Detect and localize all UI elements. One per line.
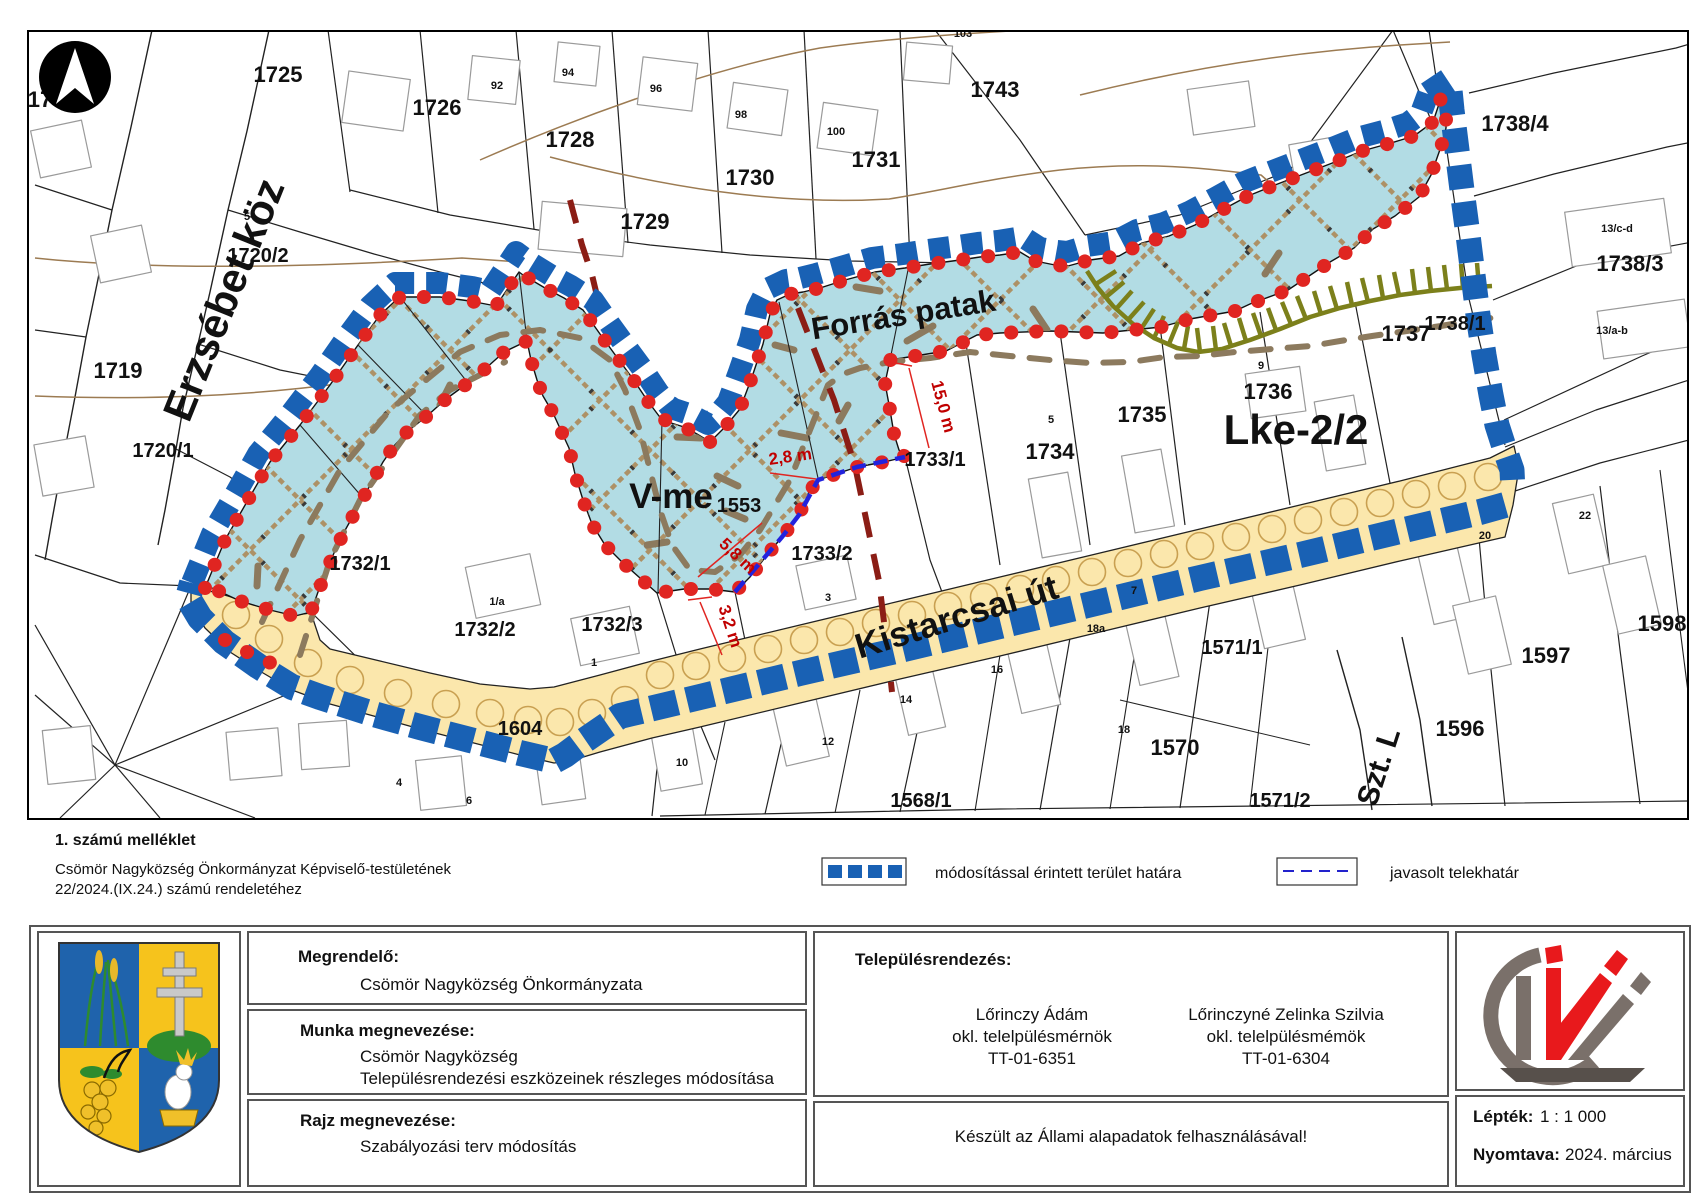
svg-text:1733/1: 1733/1 [904,449,965,471]
svg-text:Csömör Nagyközség Önkormányzat: Csömör Nagyközség Önkormányzat Képviselő… [55,860,452,878]
svg-text:1597: 1597 [1522,643,1571,668]
svg-text:Lőrinczy Ádám: Lőrinczy Ádám [976,1005,1088,1024]
svg-text:1735: 1735 [1118,402,1167,427]
svg-text:okl. telelpülésmérnök: okl. telelpülésmérnök [952,1027,1112,1046]
svg-text:18: 18 [1118,724,1130,736]
svg-text:94: 94 [562,67,575,79]
svg-text:1553: 1553 [717,495,762,517]
svg-text:javasolt telekhatár: javasolt telekhatár [1389,865,1520,882]
svg-text:TT-01-6304: TT-01-6304 [1242,1049,1330,1068]
svg-text:Csömör Nagyközség: Csömör Nagyközség [360,1047,518,1066]
svg-text:1568/1: 1568/1 [890,790,951,812]
svg-text:1743: 1743 [971,77,1020,102]
svg-text:1738/3: 1738/3 [1596,251,1663,276]
svg-text:1732/1: 1732/1 [329,553,390,575]
svg-text:Csömör Nagyközség Önkormányzat: Csömör Nagyközség Önkormányzata [360,975,643,994]
svg-text:5: 5 [1048,414,1054,426]
svg-text:12: 12 [822,736,834,748]
svg-text:Szabályozási terv módosítás: Szabályozási terv módosítás [360,1137,576,1156]
svg-text:1571/2: 1571/2 [1249,790,1310,812]
svg-text:okl. telelpülésmémök: okl. telelpülésmémök [1207,1027,1366,1046]
svg-text:1726: 1726 [413,95,462,120]
svg-text:4: 4 [396,777,403,789]
svg-text:14: 14 [900,694,913,706]
svg-text:6: 6 [466,795,472,807]
svg-text:2024. március: 2024. március [1565,1145,1672,1164]
svg-text:1736: 1736 [1244,379,1293,404]
svg-text:22/2024.(IX.24.) számú rendele: 22/2024.(IX.24.) számú rendeletéhez [55,881,302,898]
svg-text:Készült az Állami alapadatok f: Készült az Állami alapadatok felhasználá… [955,1127,1307,1146]
svg-text:92: 92 [491,80,503,92]
svg-text:9: 9 [1258,360,1264,372]
svg-text:1733/2: 1733/2 [791,543,852,565]
svg-text:1732/2: 1732/2 [454,619,515,641]
svg-text:18a: 18a [1087,623,1106,635]
svg-text:20: 20 [1479,530,1491,542]
svg-text:Lépték:: Lépték: [1473,1107,1533,1126]
svg-text:3: 3 [825,592,831,604]
svg-text:V-me: V-me [629,477,713,516]
svg-text:1570: 1570 [1151,735,1200,760]
svg-text:1729: 1729 [621,209,670,234]
svg-text:1738/4: 1738/4 [1481,111,1549,136]
svg-text:1720/1: 1720/1 [132,440,193,462]
svg-text:1598: 1598 [1638,611,1687,636]
svg-text:13/a-b: 13/a-b [1596,325,1628,337]
svg-text:10: 10 [676,757,688,769]
svg-text:Településrendezés:: Településrendezés: [855,950,1012,969]
svg-text:1731: 1731 [852,147,901,172]
svg-text:1 : 1 000: 1 : 1 000 [1540,1107,1606,1126]
svg-text:1/a: 1/a [489,596,505,608]
svg-text:Munka megnevezése:: Munka megnevezése: [300,1021,475,1040]
svg-text:100: 100 [827,126,845,138]
svg-text:1737: 1737 [1382,321,1431,346]
svg-text:96: 96 [650,83,662,95]
svg-text:1725: 1725 [254,62,303,87]
svg-text:módosítással érintett terület: módosítással érintett terület határa [935,865,1181,882]
svg-text:16: 16 [991,664,1003,676]
svg-text:1. számú melléklet: 1. számú melléklet [55,832,196,849]
svg-text:1728: 1728 [546,127,595,152]
svg-text:Lőrinczyné Zelinka Szilvia: Lőrinczyné Zelinka Szilvia [1188,1005,1384,1024]
svg-text:22: 22 [1579,510,1591,522]
svg-text:1719: 1719 [94,358,143,383]
svg-text:1730: 1730 [726,165,775,190]
svg-text:1604: 1604 [498,718,543,740]
svg-text:13/c-d: 13/c-d [1601,223,1633,235]
svg-text:Rajz megnevezése:: Rajz megnevezése: [300,1111,456,1130]
svg-text:TT-01-6351: TT-01-6351 [988,1049,1076,1068]
svg-text:Megrendelő:: Megrendelő: [298,947,399,966]
svg-text:1738/1: 1738/1 [1424,313,1485,335]
svg-text:Településrendezési eszközeinek: Településrendezési eszközeinek részleges… [360,1069,774,1088]
svg-text:1732/3: 1732/3 [581,614,642,636]
svg-text:7: 7 [1131,585,1137,597]
svg-text:98: 98 [735,109,747,121]
svg-text:Lke-2/2: Lke-2/2 [1224,406,1369,453]
svg-text:1734: 1734 [1026,439,1076,464]
svg-text:Nyomtava:: Nyomtava: [1473,1145,1560,1164]
svg-text:1596: 1596 [1436,716,1485,741]
svg-text:1571/1: 1571/1 [1201,637,1262,659]
svg-text:1: 1 [591,657,597,669]
